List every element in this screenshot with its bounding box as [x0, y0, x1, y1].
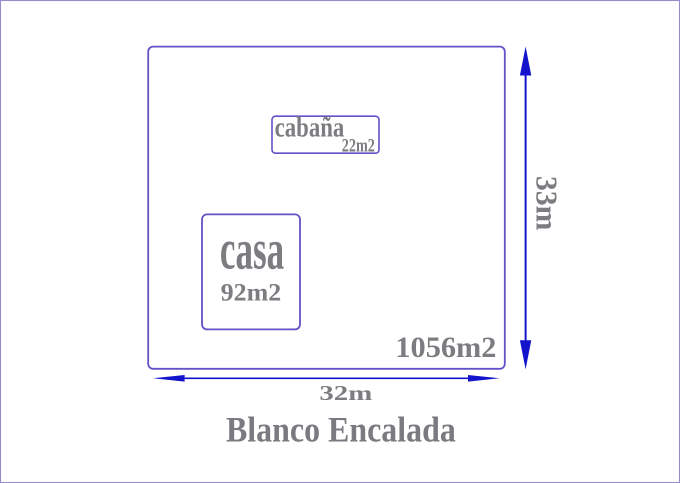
svg-text:33m: 33m	[530, 176, 564, 230]
svg-text:22m2: 22m2	[342, 135, 375, 156]
svg-text:cabaña: cabaña	[275, 112, 345, 144]
svg-text:Blanco Encalada: Blanco Encalada	[226, 409, 456, 449]
svg-text:casa: casa	[220, 218, 284, 281]
svg-text:92m2: 92m2	[221, 278, 282, 307]
svg-text:1056m2: 1056m2	[395, 332, 496, 364]
svg-text:32m: 32m	[319, 381, 373, 405]
